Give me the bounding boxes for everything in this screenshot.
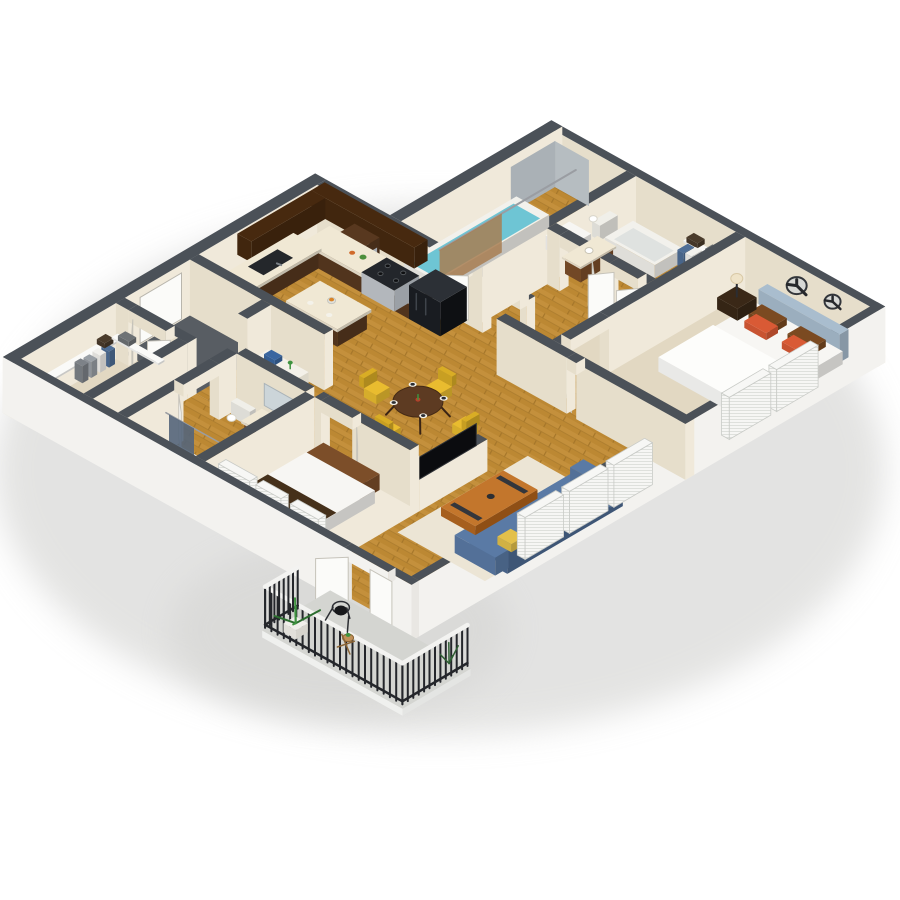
balcony-table-plant: [346, 633, 351, 637]
island-fruit: [329, 298, 334, 302]
floor-plan-3d: [0, 0, 900, 900]
scene-layers: [0, 120, 885, 735]
dining-plate-4: [421, 414, 425, 417]
counter-decor-greens: [360, 255, 367, 260]
stove-burner-4: [393, 279, 398, 283]
balcony-chair-cushion: [334, 606, 347, 616]
bath1-toilet-bowl: [589, 216, 597, 222]
stove-burner-1: [385, 264, 390, 268]
island-placemat-2: [326, 313, 332, 317]
dining-plate-3: [392, 401, 396, 404]
coffee-table-decor: [487, 494, 495, 499]
stove-burner-3: [378, 272, 383, 276]
counter-decor-plate: [349, 251, 355, 255]
bath2-toilet-bowl: [227, 414, 236, 421]
dining-plate-1: [410, 383, 414, 386]
master-lamp-shade: [731, 274, 743, 284]
floor-plan-svg: [0, 0, 900, 900]
stove-burner-2: [401, 271, 406, 275]
desk-plant: [288, 361, 293, 365]
masterbath-sink: [585, 248, 593, 254]
island-placemat-1: [307, 301, 313, 305]
dining-plate-2: [441, 397, 445, 400]
closet2-clothes4: [75, 358, 89, 383]
